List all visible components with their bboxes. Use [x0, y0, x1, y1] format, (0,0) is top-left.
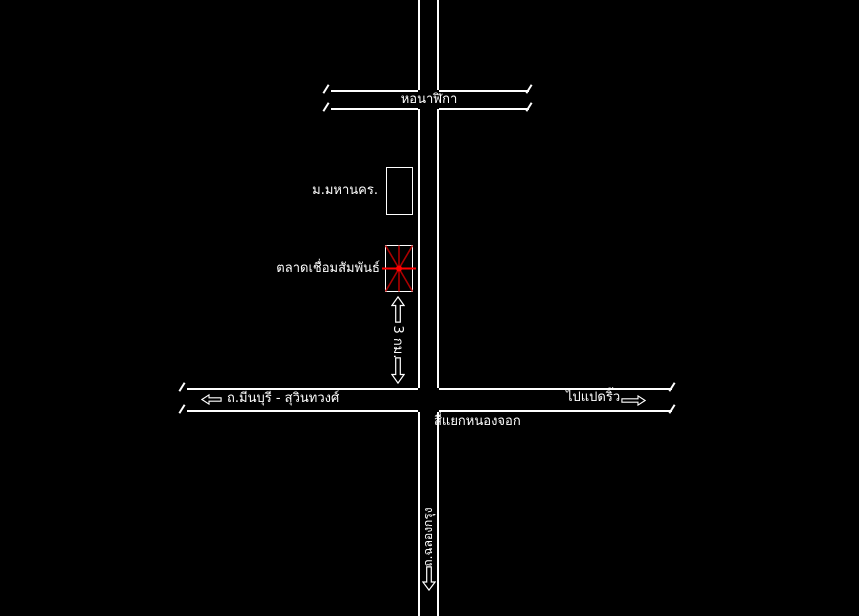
road-line-vertical-left-middle	[418, 109, 420, 388]
arrow-right-icon	[621, 395, 646, 406]
road-line-clock-bottom-left	[331, 108, 418, 110]
market-label: ตลาดเชื่อมสัมพันธ์	[258, 261, 380, 277]
university-label: ม.มหานคร.	[278, 183, 378, 199]
road-line-vertical-right-middle	[437, 109, 439, 388]
road-end-tick	[323, 84, 330, 94]
road-line-vertical-right-top	[437, 0, 439, 90]
road-end-tick	[179, 404, 186, 414]
chalong-krung-road-label: ถ.ฉลองกรุง	[421, 502, 435, 572]
to-paetriu-label: ไปแปดริ้ว	[566, 390, 620, 406]
arrow-left-icon	[201, 394, 222, 405]
arrow-down-icon	[391, 357, 405, 384]
road-line-clock-bottom-right	[439, 108, 529, 110]
intersection-label: สี่แยกหนองจอก	[434, 414, 521, 430]
road-line-minburi-bottom-left	[187, 410, 418, 412]
clock-tower-label: หอนาฬิกา	[379, 92, 479, 108]
road-line-vertical-left-bottom	[418, 412, 420, 616]
university-building-box	[386, 167, 413, 215]
arrow-down-icon	[422, 566, 436, 591]
road-line-vertical-left-top	[418, 0, 420, 90]
road-line-minburi-top-left	[187, 388, 418, 390]
road-line-vertical-right-bottom	[437, 412, 439, 616]
road-end-tick	[323, 102, 330, 112]
minburi-road-label: ถ.มีนบุรี - สุวินทวงศ์	[227, 391, 339, 407]
road-end-tick	[526, 84, 533, 94]
road-end-tick	[526, 102, 533, 112]
road-end-tick	[179, 382, 186, 392]
star-marker-icon	[381, 244, 417, 293]
road-line-minburi-top-right	[439, 388, 672, 390]
road-end-tick	[669, 382, 676, 392]
road-end-tick	[669, 404, 676, 414]
map-canvas: หอนาฬิกา ม.มหานคร. ตลาดเชื่อมสัมพันธ์ 3 …	[0, 0, 859, 616]
arrow-up-icon	[391, 296, 405, 323]
road-line-minburi-bottom-right	[439, 410, 672, 412]
